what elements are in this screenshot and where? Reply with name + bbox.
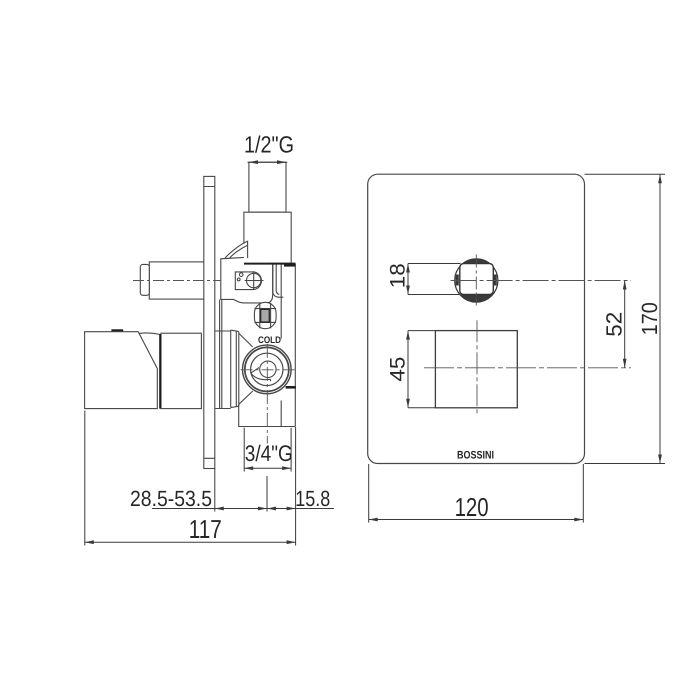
svg-text:BOSSINI: BOSSINI <box>457 450 494 462</box>
svg-text:52: 52 <box>602 312 627 337</box>
svg-text:28.5-53.5: 28.5-53.5 <box>130 486 212 511</box>
svg-text:15.8: 15.8 <box>295 486 330 511</box>
svg-text:170: 170 <box>637 302 662 335</box>
svg-text:117: 117 <box>189 514 222 544</box>
svg-text:18: 18 <box>387 263 410 288</box>
svg-text:120: 120 <box>455 492 489 522</box>
svg-text:45: 45 <box>387 357 410 382</box>
svg-text:1/2"G: 1/2"G <box>244 132 294 158</box>
svg-text:COLD: COLD <box>258 335 281 346</box>
svg-text:3/4"G: 3/4"G <box>245 441 293 466</box>
